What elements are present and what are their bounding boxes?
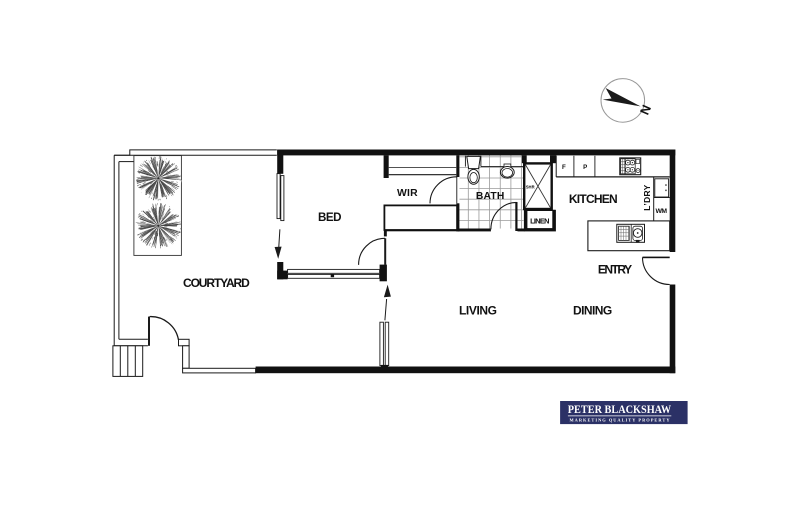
svg-text:DINING: DINING: [573, 304, 612, 318]
svg-text:KITCHEN: KITCHEN: [569, 192, 618, 206]
svg-text:WM: WM: [656, 208, 668, 215]
svg-text:WIR: WIR: [397, 188, 418, 199]
svg-text:L’DRY: L’DRY: [642, 184, 652, 210]
svg-text:LINEN: LINEN: [530, 216, 549, 225]
svg-text:COURTYARD: COURTYARD: [183, 276, 250, 290]
svg-text:P: P: [583, 164, 587, 171]
svg-text:SHR: SHR: [526, 184, 535, 189]
svg-text:ENTRY: ENTRY: [598, 263, 632, 277]
svg-text:PETER BLACKSHAW: PETER BLACKSHAW: [568, 404, 672, 416]
svg-text:BED: BED: [318, 211, 342, 224]
svg-text:LIVING: LIVING: [459, 304, 497, 318]
svg-text:F: F: [562, 164, 566, 171]
svg-text:BATH: BATH: [476, 191, 504, 202]
svg-text:MARKETING QUALITY PROPERTY: MARKETING QUALITY PROPERTY: [570, 417, 671, 422]
